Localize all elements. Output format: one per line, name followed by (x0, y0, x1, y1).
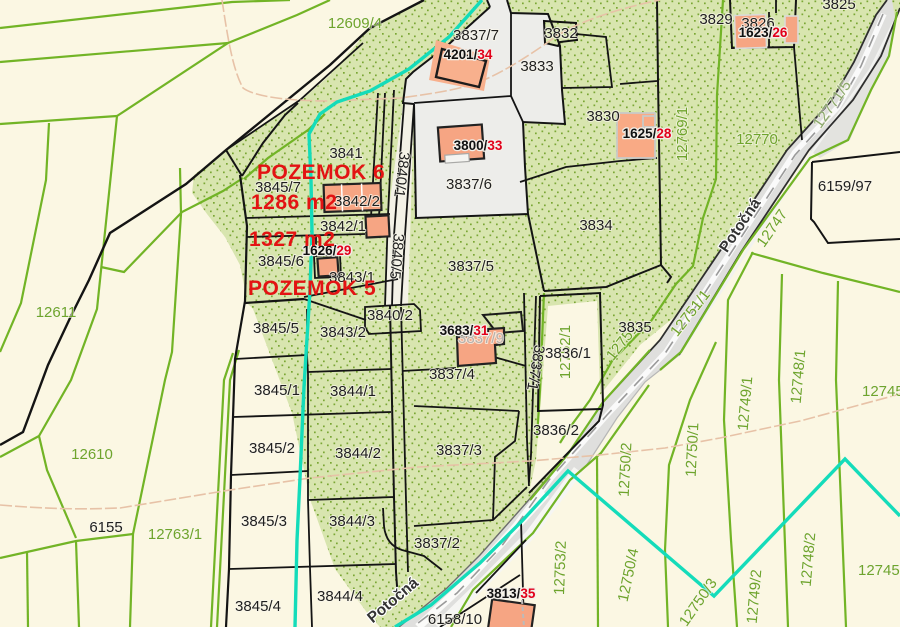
svg-text:6155: 6155 (89, 519, 122, 536)
svg-text:3845/5: 3845/5 (253, 320, 299, 337)
svg-text:3841: 3841 (329, 145, 362, 162)
svg-text:POZEMOK 5: POZEMOK 5 (248, 277, 376, 300)
svg-text:3845/4: 3845/4 (235, 598, 281, 615)
svg-text:3800/33: 3800/33 (454, 138, 503, 153)
svg-text:3834: 3834 (579, 217, 612, 234)
svg-text:12611: 12611 (36, 304, 77, 321)
svg-text:3843/2: 3843/2 (320, 324, 366, 341)
svg-text:1623/26: 1623/26 (739, 25, 788, 40)
svg-text:12745: 12745 (858, 562, 900, 579)
svg-text:3837/7: 3837/7 (453, 27, 499, 44)
svg-text:3835: 3835 (618, 319, 651, 336)
svg-text:3837/2: 3837/2 (414, 535, 460, 552)
svg-text:1327 m2: 1327 m2 (249, 228, 335, 251)
svg-text:3683/31: 3683/31 (440, 323, 489, 338)
svg-text:12745/: 12745/ (862, 383, 900, 400)
svg-text:12770: 12770 (736, 131, 778, 148)
svg-text:1625/28: 1625/28 (623, 126, 672, 141)
svg-text:3832: 3832 (544, 25, 577, 42)
svg-text:3837/3: 3837/3 (436, 442, 482, 459)
svg-text:3844/1: 3844/1 (330, 383, 376, 400)
svg-text:12750/2: 12750/2 (616, 442, 636, 497)
svg-text:3844/4: 3844/4 (317, 588, 363, 605)
svg-text:12763/1: 12763/1 (148, 526, 202, 543)
svg-text:3836/1: 3836/1 (545, 345, 591, 362)
svg-text:3836/2: 3836/2 (533, 422, 579, 439)
svg-text:3813/35: 3813/35 (487, 586, 536, 601)
svg-text:6159/97: 6159/97 (818, 178, 872, 195)
svg-text:3844/2: 3844/2 (335, 445, 381, 462)
svg-text:1286 m2: 1286 m2 (251, 191, 337, 214)
svg-text:12609/4: 12609/4 (328, 15, 382, 32)
svg-text:3837/6: 3837/6 (446, 176, 492, 193)
svg-text:3840/2: 3840/2 (367, 307, 413, 324)
svg-text:3845/1: 3845/1 (254, 382, 300, 399)
svg-text:3842/2: 3842/2 (334, 193, 380, 210)
svg-text:6158/10: 6158/10 (428, 611, 482, 627)
svg-text:12750/1: 12750/1 (683, 422, 703, 477)
svg-text:3830: 3830 (586, 108, 619, 125)
svg-text:12769/1: 12769/1 (674, 107, 691, 161)
svg-text:3837/4: 3837/4 (429, 366, 475, 383)
svg-text:3845/2: 3845/2 (249, 440, 295, 457)
svg-text:3833: 3833 (520, 58, 553, 75)
svg-text:3837/5: 3837/5 (448, 258, 494, 275)
svg-text:3829: 3829 (699, 11, 732, 28)
svg-text:4201/34: 4201/34 (444, 47, 493, 62)
svg-text:12753/2: 12753/2 (551, 540, 570, 595)
svg-text:3845/6: 3845/6 (258, 253, 304, 270)
svg-text:12610: 12610 (71, 446, 113, 463)
svg-text:POZEMOK 6: POZEMOK 6 (257, 161, 385, 184)
svg-text:3844/3: 3844/3 (329, 513, 375, 530)
svg-text:3825: 3825 (822, 0, 855, 13)
svg-text:3845/3: 3845/3 (241, 513, 287, 530)
